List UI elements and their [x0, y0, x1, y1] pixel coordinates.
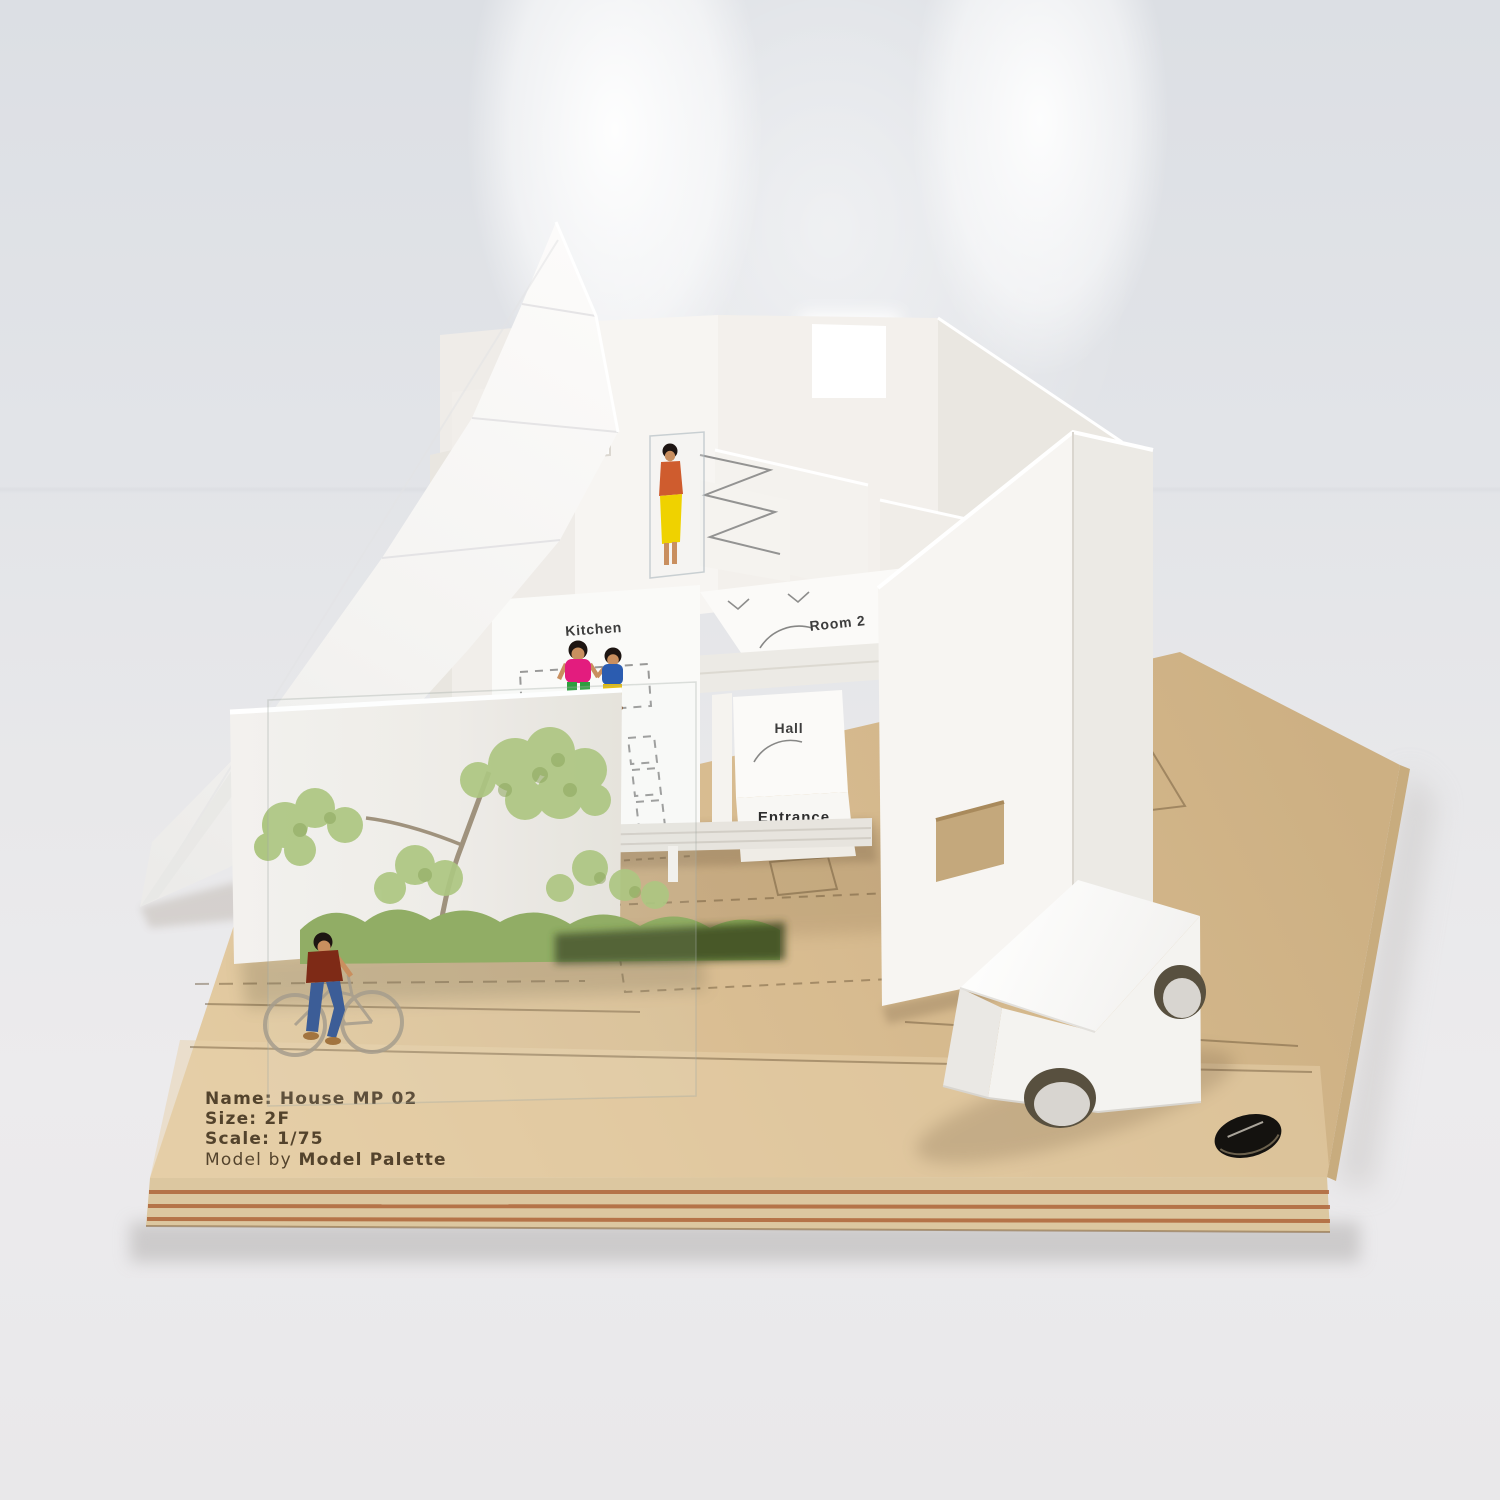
- hall-label: Hall: [775, 720, 804, 736]
- column-tall: [712, 693, 732, 838]
- cyclist-panel: [265, 682, 696, 1106]
- car-front-wheel: [1024, 1068, 1096, 1128]
- front-wheel: [1034, 1082, 1090, 1126]
- mom-top: [565, 659, 591, 683]
- car-rear-wheel: [1154, 965, 1206, 1019]
- engraving-credit: Model by Model Palette: [205, 1150, 447, 1170]
- mom-face: [572, 648, 585, 661]
- cyclist-shoe1: [303, 1032, 319, 1040]
- woman-face: [665, 451, 675, 461]
- rear-wheel: [1163, 978, 1201, 1018]
- cyclist-shoe2: [325, 1037, 341, 1045]
- back-window-bright: [812, 324, 886, 398]
- woman-leg2: [672, 542, 677, 564]
- cyclist-torso: [306, 950, 343, 983]
- woman-leg1: [664, 543, 669, 565]
- woman-skirt: [660, 494, 682, 544]
- photo-architectural-model: Name: House MP 02 Size: 2F Scale: 1/75 M…: [0, 0, 1500, 1500]
- kid-top: [602, 664, 623, 685]
- woman-top: [659, 461, 683, 496]
- hall-floor: [733, 690, 848, 798]
- engraving-scale: Scale: 1/75: [205, 1129, 324, 1149]
- model-scene: Name: House MP 02 Size: 2F Scale: 1/75 M…: [0, 0, 1500, 1500]
- engraving-size: Size: 2F: [205, 1109, 290, 1129]
